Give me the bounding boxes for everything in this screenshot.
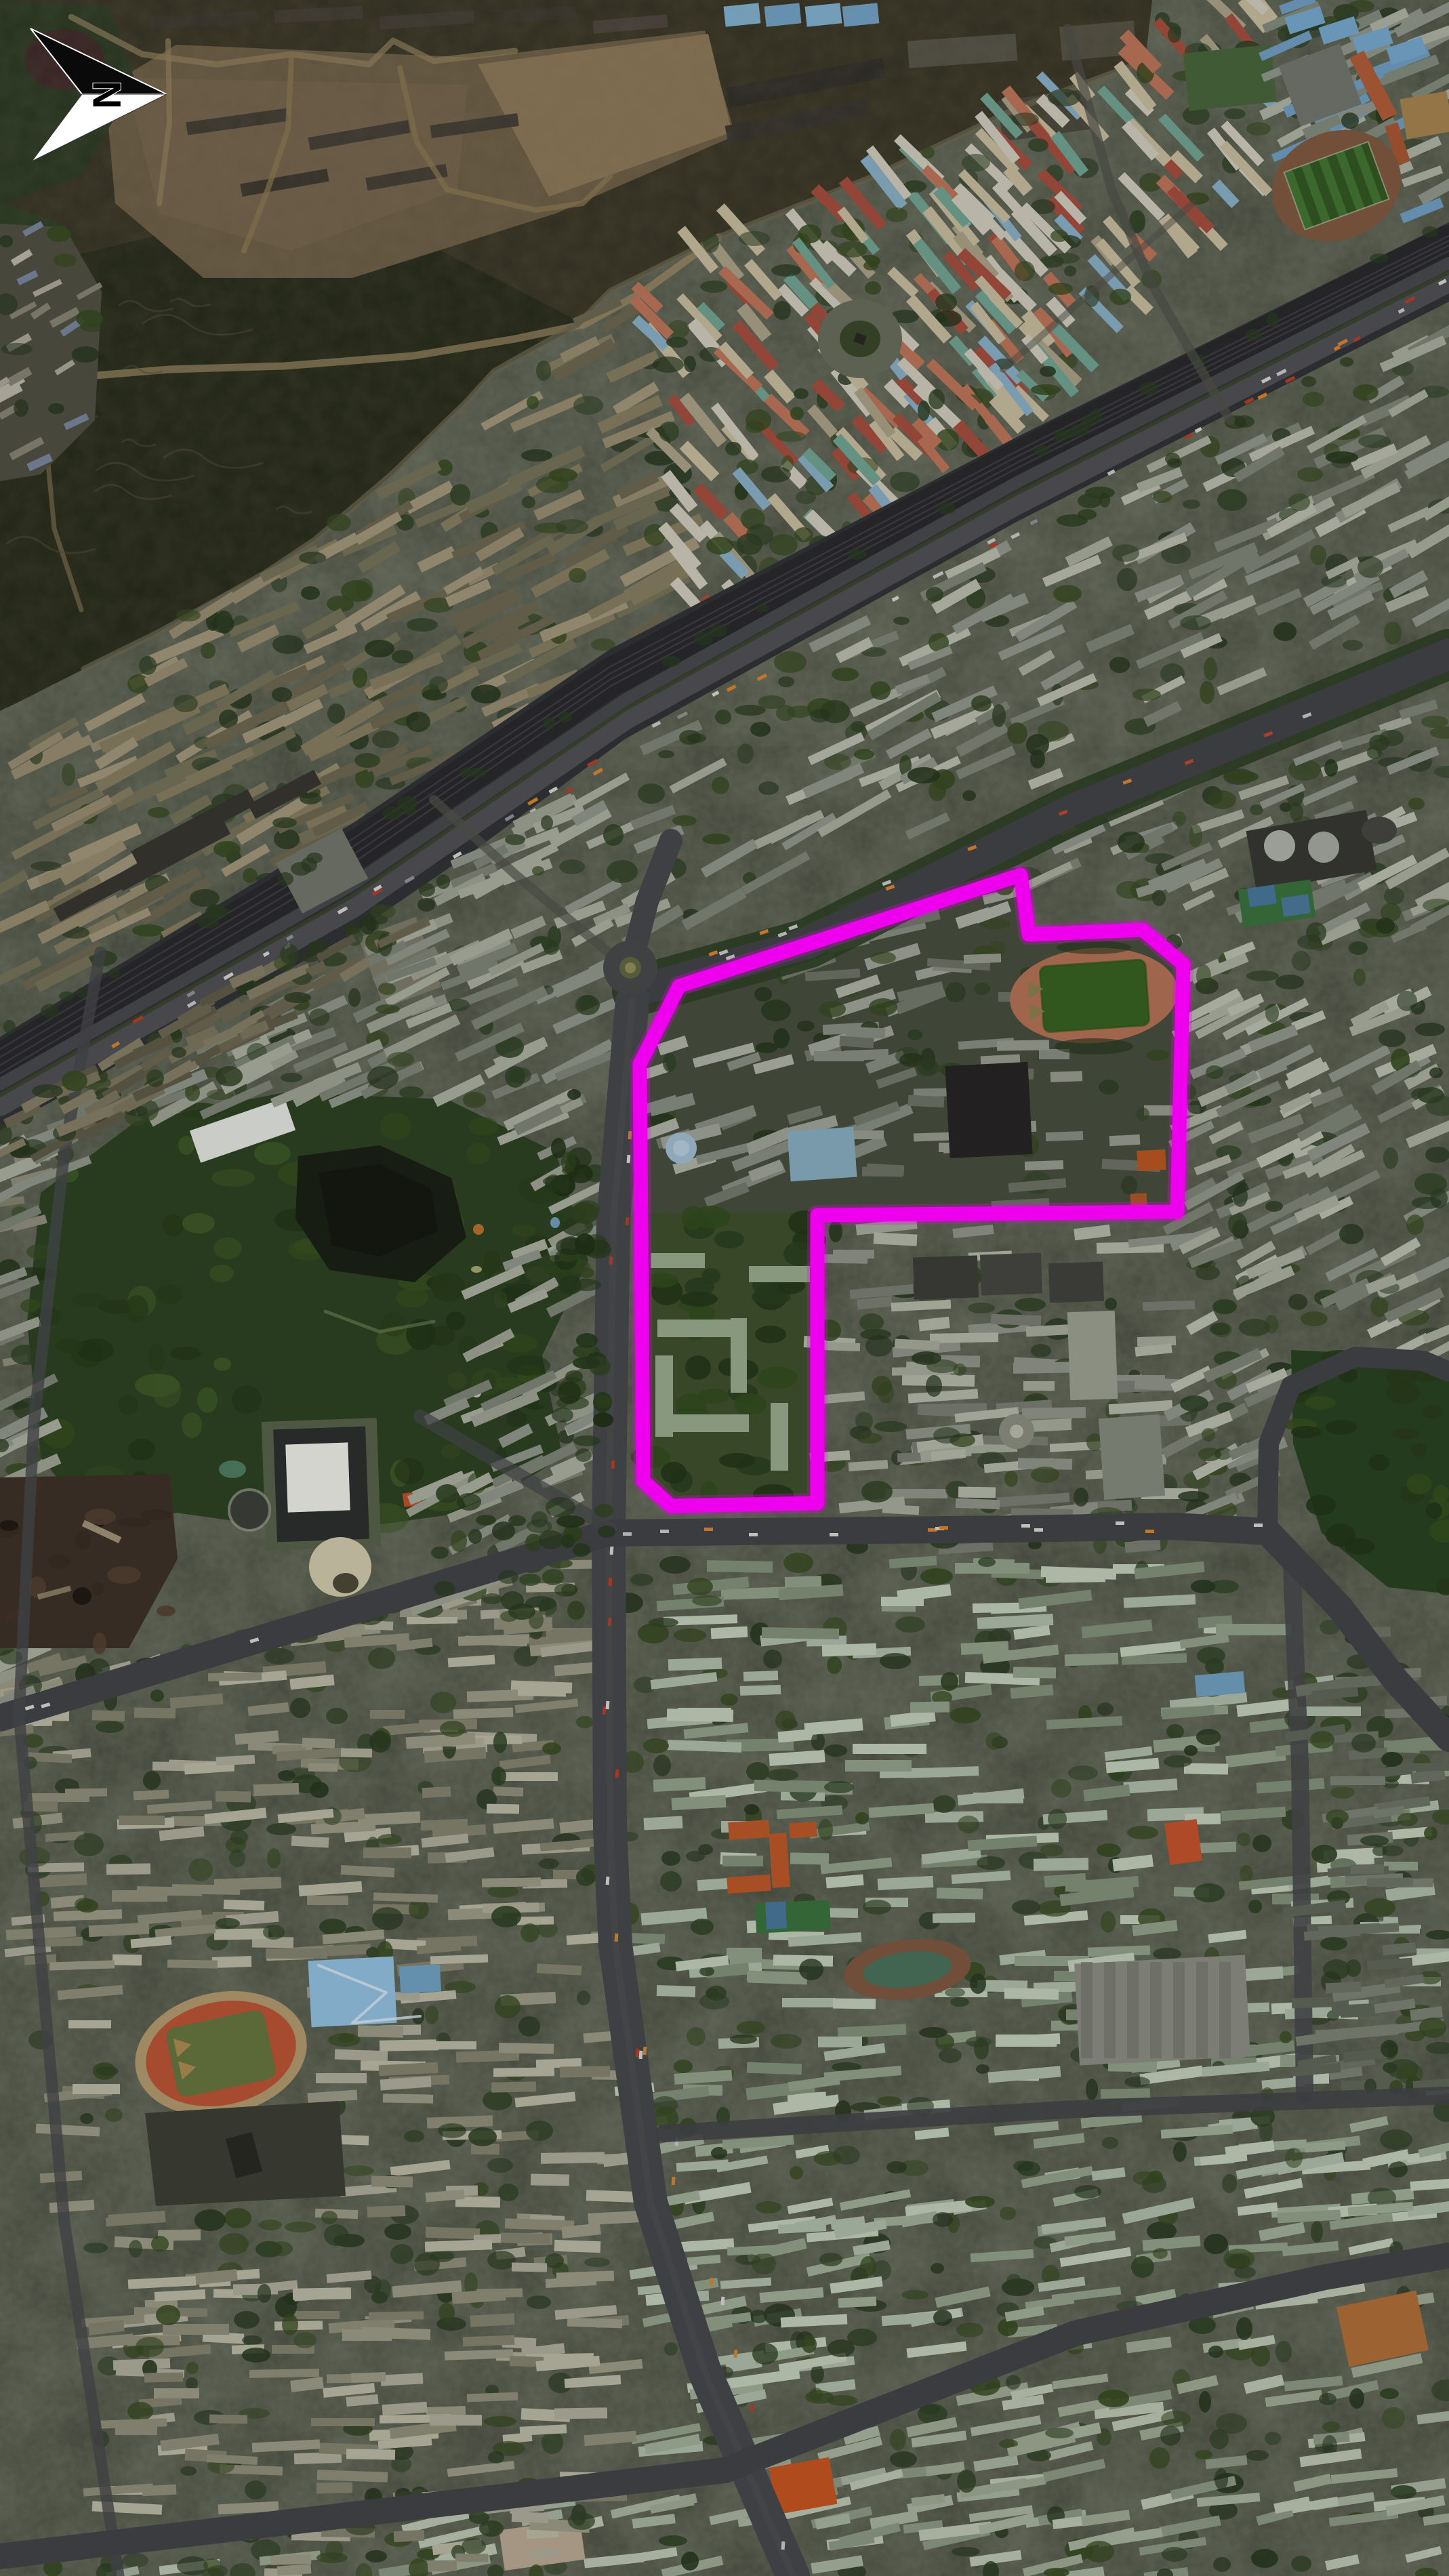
svg-text:N: N: [85, 81, 129, 109]
